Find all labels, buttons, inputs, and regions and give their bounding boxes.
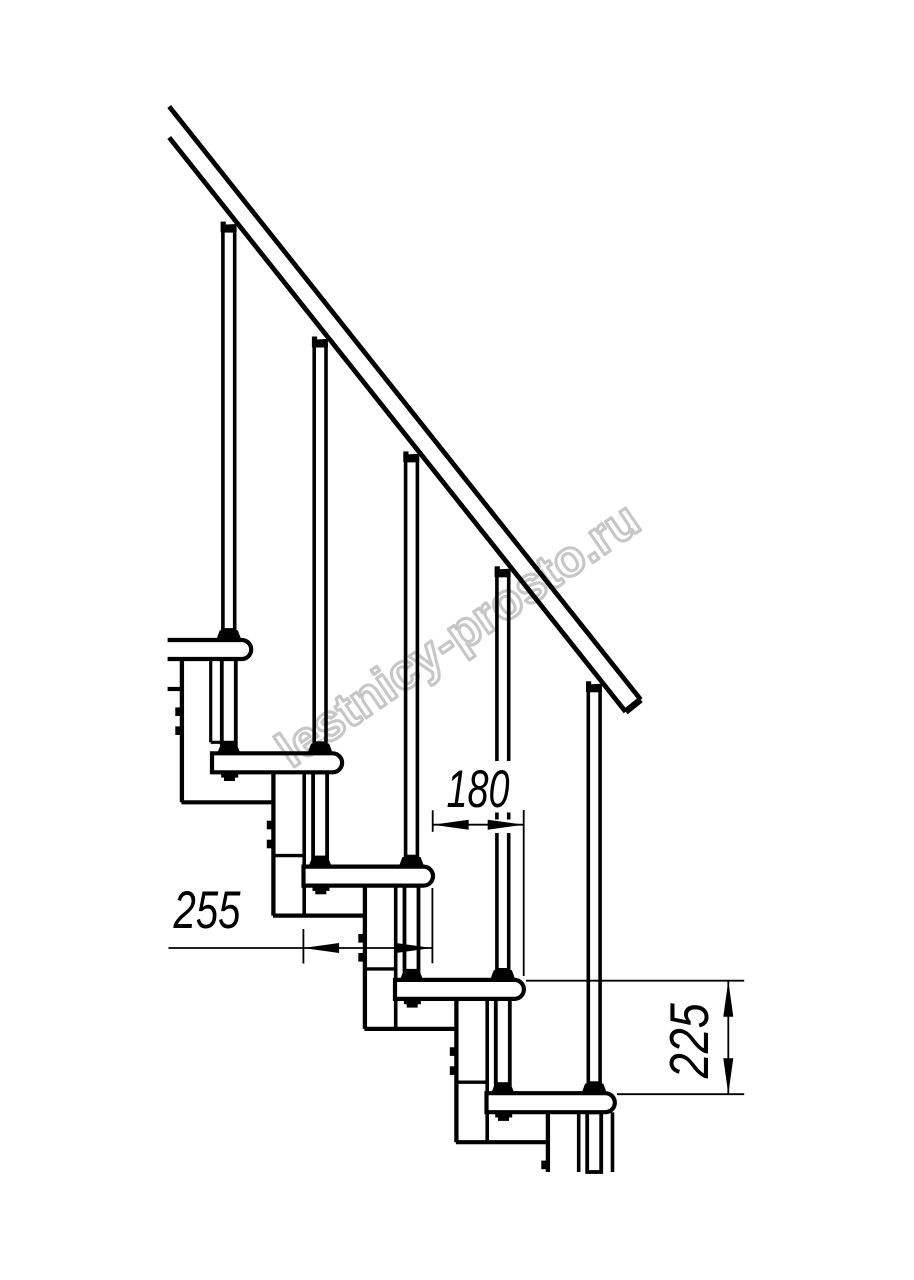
svg-text:180: 180 [447,760,510,819]
svg-text:225: 225 [658,1003,720,1079]
svg-text:255: 255 [173,881,241,940]
